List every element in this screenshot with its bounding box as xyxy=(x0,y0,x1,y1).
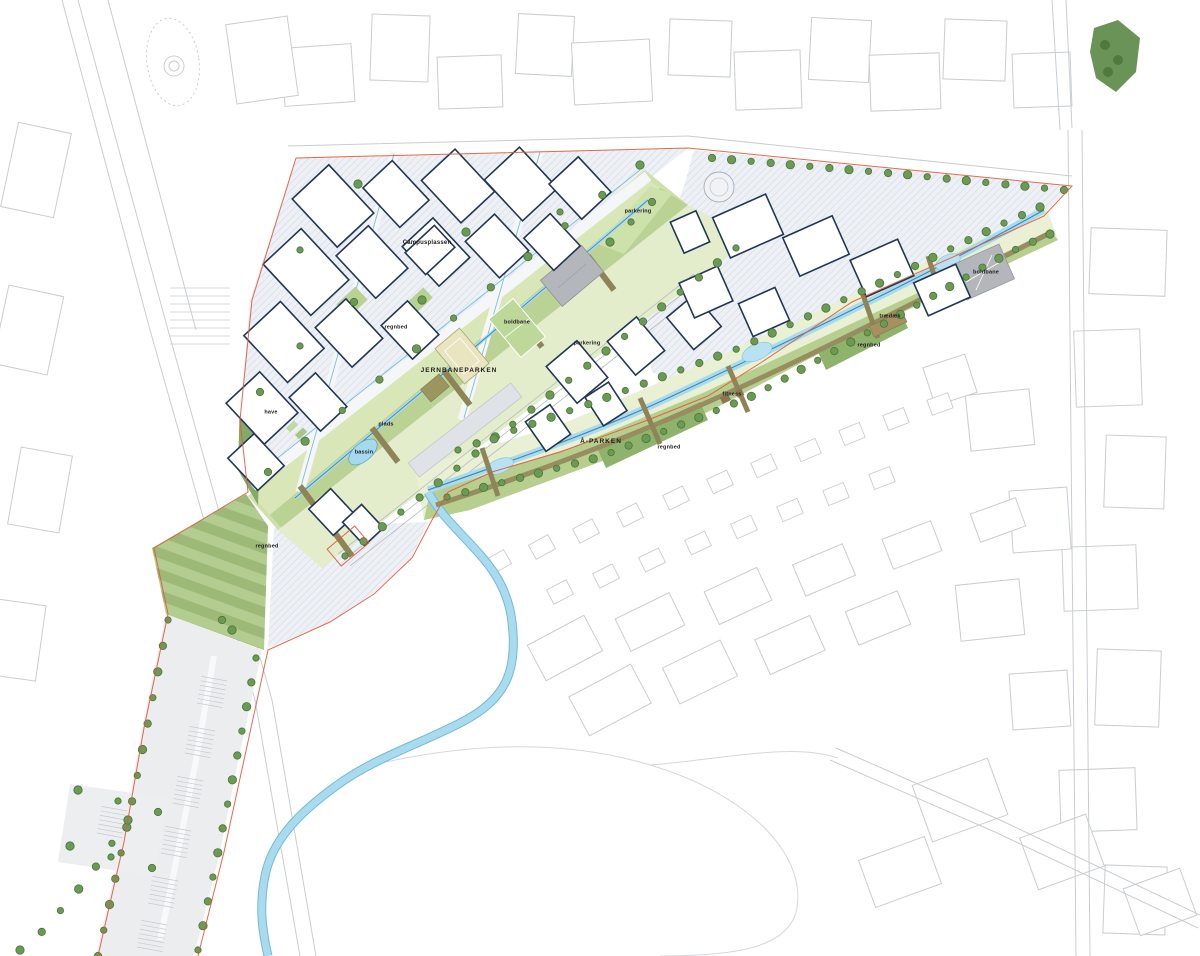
tree xyxy=(455,447,461,453)
tree xyxy=(751,338,758,345)
tree xyxy=(929,253,937,261)
tree xyxy=(1060,186,1067,193)
tree xyxy=(154,808,161,815)
tree xyxy=(713,407,719,413)
tree xyxy=(487,284,494,291)
tree xyxy=(115,798,121,804)
tree xyxy=(1001,220,1007,226)
tree xyxy=(589,455,597,463)
tree xyxy=(253,655,259,661)
tree xyxy=(218,616,225,623)
tree xyxy=(350,298,357,305)
tree xyxy=(148,864,155,871)
tree xyxy=(640,380,647,387)
tree xyxy=(733,346,739,352)
tree xyxy=(510,421,516,427)
tree xyxy=(248,679,255,686)
tree xyxy=(807,163,813,169)
tree xyxy=(786,161,794,169)
tree xyxy=(376,376,383,383)
tree xyxy=(342,553,348,559)
tree xyxy=(963,274,969,280)
tree xyxy=(658,303,666,311)
tree xyxy=(733,245,739,251)
tree xyxy=(92,863,99,870)
tree xyxy=(639,318,646,325)
tree xyxy=(528,406,535,413)
tree xyxy=(546,391,554,399)
tree xyxy=(695,413,703,421)
tree xyxy=(847,338,855,346)
tree xyxy=(354,180,362,188)
tree xyxy=(781,375,788,382)
tree xyxy=(434,479,442,487)
tree xyxy=(727,156,735,164)
tree xyxy=(38,928,45,935)
tree xyxy=(677,289,683,295)
tree xyxy=(995,254,1003,262)
tree xyxy=(678,367,684,373)
tree xyxy=(554,465,560,471)
tree xyxy=(713,259,721,267)
tree xyxy=(599,191,606,198)
tree xyxy=(450,315,456,321)
tree xyxy=(930,292,937,299)
tree xyxy=(642,434,650,442)
tree xyxy=(378,523,386,531)
tree xyxy=(242,703,250,711)
tree xyxy=(622,387,628,393)
tree xyxy=(219,825,226,832)
tree xyxy=(606,238,614,246)
tree xyxy=(983,179,989,185)
tree xyxy=(584,362,591,369)
tree xyxy=(695,274,702,281)
tree xyxy=(1029,238,1036,245)
tree xyxy=(529,420,536,427)
tree xyxy=(1021,182,1029,190)
site-plan-map: CampusplassenregnbedboldbaneJERNBANEPARK… xyxy=(0,0,1200,956)
tree xyxy=(562,223,568,229)
tree xyxy=(875,279,883,287)
tree xyxy=(454,465,460,471)
tree xyxy=(865,168,871,174)
tree xyxy=(602,347,610,355)
tree xyxy=(767,159,774,166)
tree xyxy=(625,442,632,449)
tree xyxy=(914,302,920,308)
tree xyxy=(768,329,776,337)
tree xyxy=(815,357,821,363)
tree xyxy=(747,392,755,400)
tree xyxy=(903,171,911,179)
tree xyxy=(948,246,954,252)
tree xyxy=(412,345,420,353)
tree xyxy=(234,752,241,759)
tree xyxy=(256,388,263,395)
tree xyxy=(566,377,572,383)
tree xyxy=(360,538,367,545)
tree xyxy=(1002,181,1009,188)
tree xyxy=(516,474,523,481)
tree xyxy=(239,728,245,734)
tree xyxy=(557,209,563,215)
tree xyxy=(416,494,423,501)
tree xyxy=(628,219,634,225)
tree xyxy=(16,946,24,954)
tree xyxy=(826,164,833,171)
tree xyxy=(979,264,986,271)
tree xyxy=(708,154,715,161)
tree xyxy=(822,304,830,312)
tree xyxy=(228,626,236,634)
tree xyxy=(621,333,627,339)
tree xyxy=(714,352,722,360)
tree xyxy=(585,400,592,407)
tree xyxy=(57,907,63,913)
tree xyxy=(894,271,900,277)
tree xyxy=(636,161,644,169)
tree xyxy=(109,840,115,846)
tree xyxy=(214,849,222,857)
tree xyxy=(678,421,685,428)
tree xyxy=(661,428,667,434)
tree xyxy=(499,480,505,486)
tree xyxy=(264,468,271,475)
tree xyxy=(534,469,542,477)
tree xyxy=(297,247,303,253)
tree xyxy=(787,322,793,328)
tree xyxy=(603,393,611,401)
tree xyxy=(884,169,891,176)
tree xyxy=(479,483,487,491)
tree xyxy=(1046,230,1054,238)
tree xyxy=(982,227,990,235)
tree xyxy=(1018,211,1025,218)
tree xyxy=(648,198,655,205)
tree xyxy=(962,176,970,184)
tree xyxy=(462,228,470,236)
tree xyxy=(858,288,865,295)
tree xyxy=(228,776,236,784)
tree xyxy=(608,449,614,455)
tree xyxy=(224,801,230,807)
tree xyxy=(66,842,74,850)
tree xyxy=(567,408,573,414)
tree xyxy=(490,435,498,443)
tree xyxy=(845,166,853,174)
tree xyxy=(297,343,303,349)
tree xyxy=(547,413,555,421)
tree xyxy=(658,373,666,381)
tree xyxy=(748,158,754,164)
tree xyxy=(696,359,703,366)
tree xyxy=(462,489,469,496)
tree xyxy=(1036,203,1044,211)
tree xyxy=(511,427,517,433)
tree xyxy=(946,282,954,290)
tree xyxy=(210,874,216,880)
tree xyxy=(108,854,114,860)
site-plan-drawing xyxy=(0,0,1200,956)
tree xyxy=(965,237,972,244)
tree xyxy=(571,460,578,467)
tree xyxy=(804,313,811,320)
tree xyxy=(473,440,480,447)
tree xyxy=(75,885,83,893)
tree xyxy=(398,509,404,515)
context-park-teardrop xyxy=(141,15,205,109)
tree xyxy=(896,310,904,318)
tree xyxy=(74,786,82,794)
tree xyxy=(943,175,950,182)
tree xyxy=(472,450,479,457)
context-grove xyxy=(1090,20,1140,92)
tree xyxy=(880,320,887,327)
tree xyxy=(841,297,847,303)
tree xyxy=(339,407,345,413)
tree xyxy=(418,296,426,304)
tree xyxy=(301,437,309,445)
tree xyxy=(524,252,532,260)
tree xyxy=(1041,185,1047,191)
tree xyxy=(911,262,918,269)
tree xyxy=(765,385,771,391)
tree xyxy=(1012,246,1018,252)
tree xyxy=(797,365,805,373)
tree xyxy=(864,330,870,336)
tree xyxy=(924,174,930,180)
tree xyxy=(831,347,838,354)
tree xyxy=(730,400,737,407)
